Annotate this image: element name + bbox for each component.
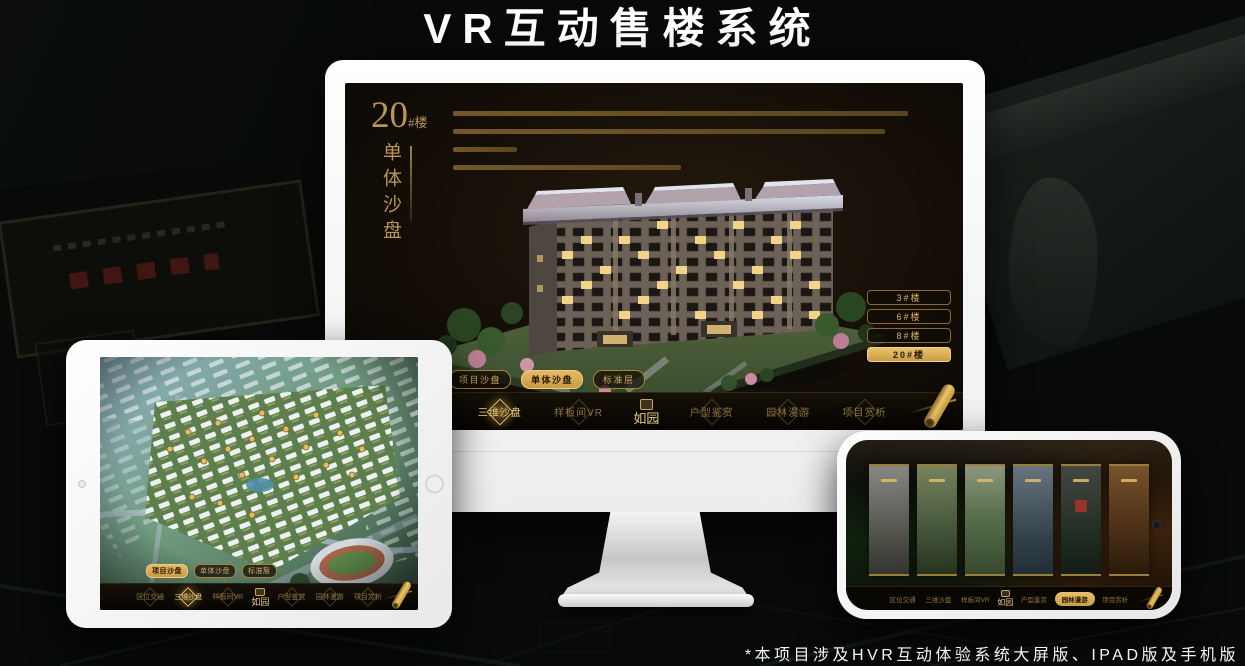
scroll-icon[interactable] bbox=[1142, 587, 1166, 610]
gallery-card[interactable] bbox=[1109, 464, 1149, 576]
nav-item-location-traffic[interactable]: 区位交通 bbox=[888, 591, 918, 607]
text-line bbox=[453, 111, 908, 116]
scroll-icon[interactable] bbox=[846, 587, 852, 610]
camera-icon bbox=[1152, 521, 1161, 530]
gallery-card-row bbox=[869, 464, 1149, 576]
nav-item-3d-sandbox[interactable]: 三维沙盘 bbox=[476, 401, 524, 422]
monitor-base bbox=[558, 594, 754, 607]
camera-icon bbox=[78, 480, 86, 488]
nav-item-label: 三维沙盘 bbox=[925, 597, 951, 604]
background-plaque bbox=[0, 179, 320, 358]
nav-item-label: 样板间VR bbox=[961, 597, 990, 604]
nav-item-label: 园林漫游 bbox=[1062, 597, 1088, 604]
main-navbar: 区位交通 三维沙盘 样板间VR 如园 户型鉴赏 园林漫游 项目赏析 bbox=[846, 586, 1172, 610]
gallery-card[interactable] bbox=[1013, 464, 1053, 576]
text-line bbox=[453, 129, 885, 134]
tablet-device: 项目沙盘 单体沙盘 标准层 区位交通 三维沙盘 样板间VR 如园 户型鉴赏 园林… bbox=[66, 340, 452, 628]
tablet-screen: 项目沙盘 单体沙盘 标准层 区位交通 三维沙盘 样板间VR 如园 户型鉴赏 园林… bbox=[100, 357, 418, 610]
floor-button-group: 3#楼 6#楼 8#楼 20#楼 bbox=[867, 290, 951, 362]
gallery-card[interactable] bbox=[965, 464, 1005, 576]
nav-item-project-gallery[interactable]: 项目赏析 bbox=[841, 401, 889, 422]
seal-icon bbox=[1001, 590, 1010, 597]
tab-standard-floor[interactable]: 标准层 bbox=[242, 564, 277, 578]
brand-logo-text: 如园 bbox=[251, 598, 269, 607]
tab-single-sandbox[interactable]: 单体沙盘 bbox=[521, 370, 583, 389]
nav-item-garden-tour[interactable]: 园林漫游 bbox=[314, 589, 346, 605]
medallion-icon bbox=[178, 587, 198, 607]
nav-item-3d-sandbox[interactable]: 三维沙盘 bbox=[923, 591, 953, 607]
stage: VR互动售楼系统 20#楼 单体沙盘 bbox=[0, 0, 1245, 666]
seal-icon bbox=[255, 588, 265, 596]
scroll-icon[interactable] bbox=[386, 581, 416, 610]
building-number: 20 bbox=[371, 95, 408, 136]
nav-item-project-gallery[interactable]: 项目赏析 bbox=[352, 589, 384, 605]
scroll-icon[interactable] bbox=[915, 384, 963, 430]
medallion-icon bbox=[775, 398, 802, 425]
nav-item-label: 项目赏析 bbox=[1102, 597, 1128, 604]
nav-item-model-room-vr[interactable]: 样板间VR bbox=[210, 589, 245, 605]
home-button bbox=[425, 475, 444, 494]
seal-icon bbox=[640, 399, 653, 410]
medallion-icon bbox=[486, 398, 513, 425]
footnote: *本项目涉及HVR互动体验系统大屏版、IPAD版及手机版 bbox=[745, 641, 1239, 665]
brand-logo-ruyuan[interactable]: 如园 bbox=[997, 590, 1013, 607]
main-navbar: 区位交通 三维沙盘 样板间VR 如园 户型鉴赏 园林漫游 项目赏析 bbox=[100, 583, 418, 610]
gallery-card[interactable] bbox=[1061, 464, 1101, 576]
brand-logo-text: 如园 bbox=[997, 599, 1013, 607]
page-title: VR互动售楼系统 bbox=[0, 0, 1245, 58]
nav-item-unit-gallery[interactable]: 户型鉴赏 bbox=[688, 401, 736, 422]
nav-item-label: 区位交通 bbox=[890, 597, 916, 604]
floor-button-3[interactable]: 3#楼 bbox=[867, 290, 951, 305]
floor-button-6[interactable]: 6#楼 bbox=[867, 309, 951, 324]
tab-standard-floor[interactable]: 标准层 bbox=[593, 370, 645, 389]
tab-project-sandbox[interactable]: 项目沙盘 bbox=[449, 370, 511, 389]
nav-item-garden-tour[interactable]: 园林漫游 bbox=[1055, 592, 1095, 606]
nav-item-model-room-vr[interactable]: 样板间VR bbox=[959, 591, 992, 607]
medallion-icon bbox=[358, 587, 378, 607]
medallion-icon bbox=[320, 587, 340, 607]
phone-device: 区位交通 三维沙盘 样板间VR 如园 户型鉴赏 园林漫游 项目赏析 bbox=[837, 431, 1181, 619]
nav-item-garden-tour[interactable]: 园林漫游 bbox=[764, 401, 812, 422]
nav-item-unit-gallery[interactable]: 户型鉴赏 bbox=[1019, 591, 1049, 607]
medallion-icon bbox=[565, 398, 592, 425]
brand-logo-ruyuan[interactable]: 如园 bbox=[251, 588, 269, 607]
medallion-icon bbox=[851, 398, 878, 425]
nav-item-3d-sandbox[interactable]: 三维沙盘 bbox=[172, 589, 204, 605]
medallion-icon bbox=[218, 587, 238, 607]
brand-logo-text: 如园 bbox=[633, 412, 659, 425]
nav-item-location-traffic[interactable]: 区位交通 bbox=[134, 589, 166, 605]
brand-logo-ruyuan[interactable]: 如园 bbox=[633, 399, 659, 425]
scroll-icon[interactable] bbox=[100, 581, 102, 610]
nav-item-project-gallery[interactable]: 项目赏析 bbox=[1100, 591, 1130, 607]
gallery-card[interactable] bbox=[917, 464, 957, 576]
sub-tab-group: 项目沙盘 单体沙盘 标准层 bbox=[146, 564, 277, 578]
sub-tab-group: 项目沙盘 单体沙盘 标准层 bbox=[449, 370, 645, 389]
floor-button-20[interactable]: 20#楼 bbox=[867, 347, 951, 362]
gallery-card[interactable] bbox=[869, 464, 909, 576]
phone-screen: 区位交通 三维沙盘 样板间VR 如园 户型鉴赏 园林漫游 项目赏析 bbox=[846, 440, 1172, 610]
medallion-icon bbox=[282, 587, 302, 607]
tab-project-sandbox[interactable]: 项目沙盘 bbox=[146, 564, 188, 578]
medallion-icon bbox=[140, 587, 160, 607]
nav-item-label: 户型鉴赏 bbox=[1021, 597, 1047, 604]
building-number-suffix: #楼 bbox=[408, 115, 428, 130]
medallion-icon bbox=[698, 398, 725, 425]
nav-item-model-room-vr[interactable]: 样板间VR bbox=[552, 401, 605, 422]
tab-single-sandbox[interactable]: 单体沙盘 bbox=[194, 564, 236, 578]
nav-item-unit-gallery[interactable]: 户型鉴赏 bbox=[276, 589, 308, 605]
floor-button-8[interactable]: 8#楼 bbox=[867, 328, 951, 343]
